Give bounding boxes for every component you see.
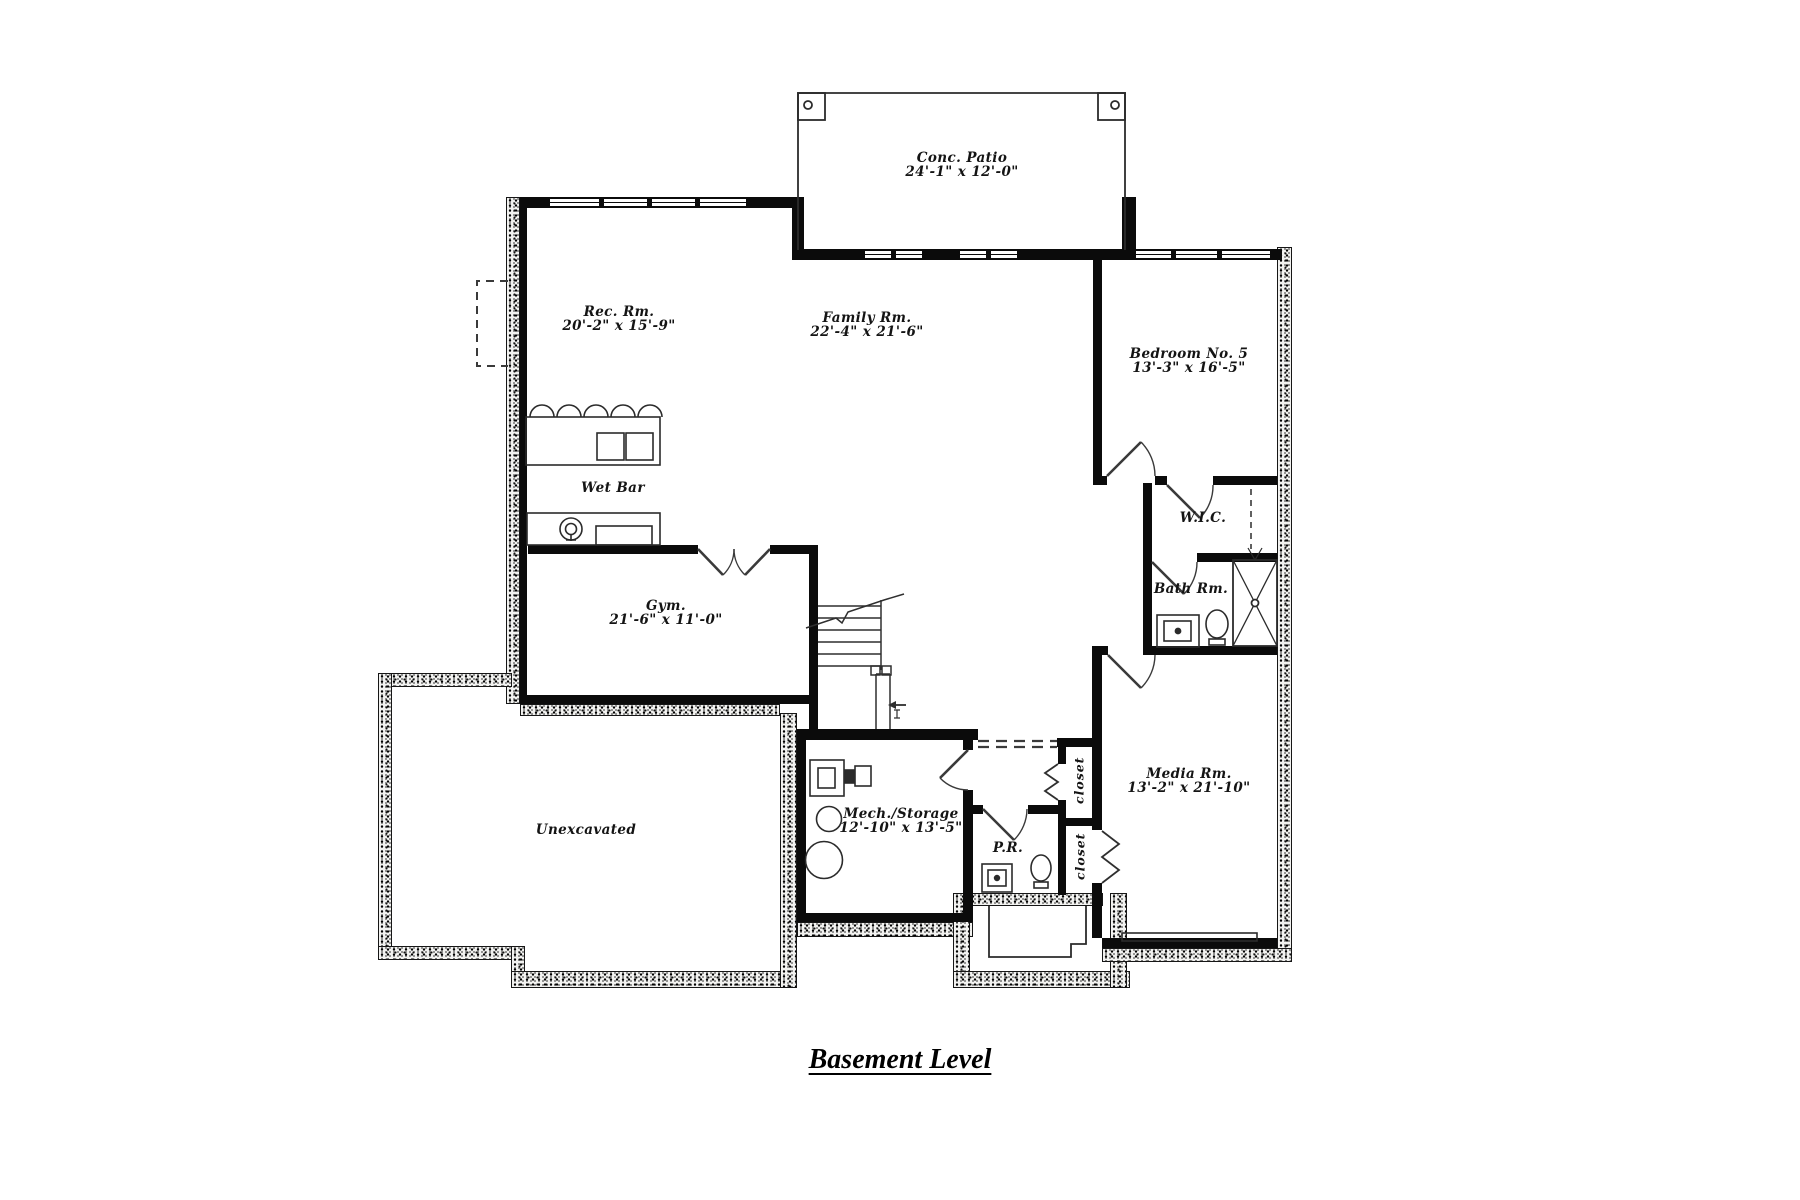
room-dims: 21'-6" x 11'-0" [609,613,722,627]
bath-shower [1233,548,1277,646]
window-divider [891,249,896,260]
wall-media-left-b [1092,883,1102,938]
room-label-mech: Mech./Storage 12'-10" x 13'-5" [839,807,962,835]
window-divider [1171,249,1176,260]
window-well-dashed [477,281,508,366]
wall-mech-left [797,740,806,915]
bath-toilet [1206,610,1228,645]
room-name: Wet Bar [581,481,645,495]
wall-wic-top [1213,476,1277,485]
cased-opening-dashed [978,741,1057,747]
wall-closet-west-b [1058,800,1066,895]
wall-family-south [797,729,978,740]
room-label-unexcavated: Unexcavated [536,823,636,837]
wall-wic-bath-divider [1197,553,1277,562]
wall-bedroom-top-cap [1270,249,1282,260]
pr-toilet [1031,855,1051,888]
room-label-closet-upper: closet [1069,750,1089,810]
wall-bedroom-bottom-b [1155,476,1167,485]
wall-bedroom-left [1093,258,1102,480]
wall-family-top-a [792,249,865,260]
room-dims: 24'-1" x 12'-0" [905,165,1018,179]
wall-family-top-b [922,249,960,260]
door-media [1108,655,1155,688]
window-divider [599,197,604,208]
wall-closet-divider [1058,818,1102,826]
room-label-closet-lower: closet [1070,826,1090,886]
wall-media-bottom [1102,938,1277,948]
room-label-family: Family Rm. 22'-4" x 21'-6" [810,311,923,339]
foundation-bottom-run [511,971,797,988]
room-name: Family Rm. [810,311,923,325]
foundation-unexcavated-top [378,673,512,687]
window-divider [695,197,700,208]
foundation-unexcavated-left [378,673,392,960]
room-label-bedroom5: Bedroom No. 5 13'-3" x 16'-5" [1130,347,1249,375]
room-label-media: Media Rm. 13'-2" x 21'-10" [1127,767,1250,795]
door-pr [983,809,1027,840]
wall-gym-south [520,695,818,704]
wall-bedroom-bottom-a [1093,476,1107,485]
room-name: Mech./Storage [839,807,962,821]
foundation-unexcavated-right [780,713,797,988]
gym-double-door [698,549,770,575]
room-name: Bath Rm. [1154,582,1228,596]
bath-vanity-sink [1157,615,1199,647]
room-name: Bedroom No. 5 [1130,347,1249,361]
room-dims: 12'-10" x 13'-5" [839,821,962,835]
areaway-inner-wall [989,906,1086,957]
room-dims: 13'-2" x 21'-10" [1127,781,1250,795]
foundation-media-south [1102,948,1292,962]
wall-mech-right-b [963,790,973,915]
staircase [806,594,906,729]
wet-bar-sink-counter [527,513,660,545]
door-bedroom5 [1107,442,1155,476]
foundation-mech-south [797,922,973,937]
window-bedroom-north [1136,249,1270,260]
foundation-gym-south [520,704,780,716]
window-divider [647,197,652,208]
foundation-unexcavated-bottom [378,946,525,960]
room-dims: 22'-4" x 21'-6" [810,325,923,339]
room-dims: 20'-2" x 15'-9" [562,319,675,333]
room-label-rec: Rec. Rm. 20'-2" x 15'-9" [562,305,675,333]
symbols-layer [0,0,1800,1200]
wall-left-face [520,197,527,704]
foundation-wall-left [506,197,520,704]
room-label-patio: Conc. Patio 24'-1" x 12'-0" [905,151,1018,179]
wall-pr-top-a [973,805,983,814]
wall-media-top [1155,646,1277,655]
room-label-gym: Gym. 21'-6" x 11'-0" [609,599,722,627]
room-label-wet-bar: Wet Bar [581,481,645,495]
mech-water-heaters [806,807,843,879]
room-name: Rec. Rm. [562,305,675,319]
foundation-pr-south [963,893,1103,906]
plan-title: Basement Level [809,1044,992,1076]
room-label-wic: W.I.C. [1180,511,1226,525]
bifold-closet-lower [1102,831,1119,883]
wall-wic-left [1143,483,1152,646]
wall-media-top-stub [1092,646,1108,655]
door-mech [940,750,968,790]
room-name: Media Rm. [1127,767,1250,781]
room-name: Unexcavated [536,823,636,837]
wall-gym-top-a [528,545,698,554]
room-label-pr: P.R. [993,841,1023,855]
wall-mech-right-a [963,740,973,750]
window-divider [986,249,991,260]
room-name: W.I.C. [1180,511,1226,525]
foundation-wall-right [1277,247,1292,962]
room-name: Gym. [609,599,722,613]
wall-family-top-c [1017,249,1136,260]
window-divider [1217,249,1222,260]
bifold-closet-upper [1045,764,1058,800]
room-dims: 13'-3" x 16'-5" [1130,361,1249,375]
foundation-areaway-bottom [953,971,1130,988]
wall-closet-west-a [1058,745,1066,764]
wall-mech-bottom [797,913,973,922]
room-name: Conc. Patio [905,151,1018,165]
floor-plan-basement: Conc. Patio 24'-1" x 12'-0" Rec. Rm. 20'… [0,0,1800,1200]
mech-furnace [810,760,871,796]
pr-sink [982,864,1012,892]
room-name: P.R. [993,841,1023,855]
wall-gym-right [809,545,818,740]
wet-bar-counter [526,405,662,465]
room-label-bath: Bath Rm. [1154,582,1228,596]
